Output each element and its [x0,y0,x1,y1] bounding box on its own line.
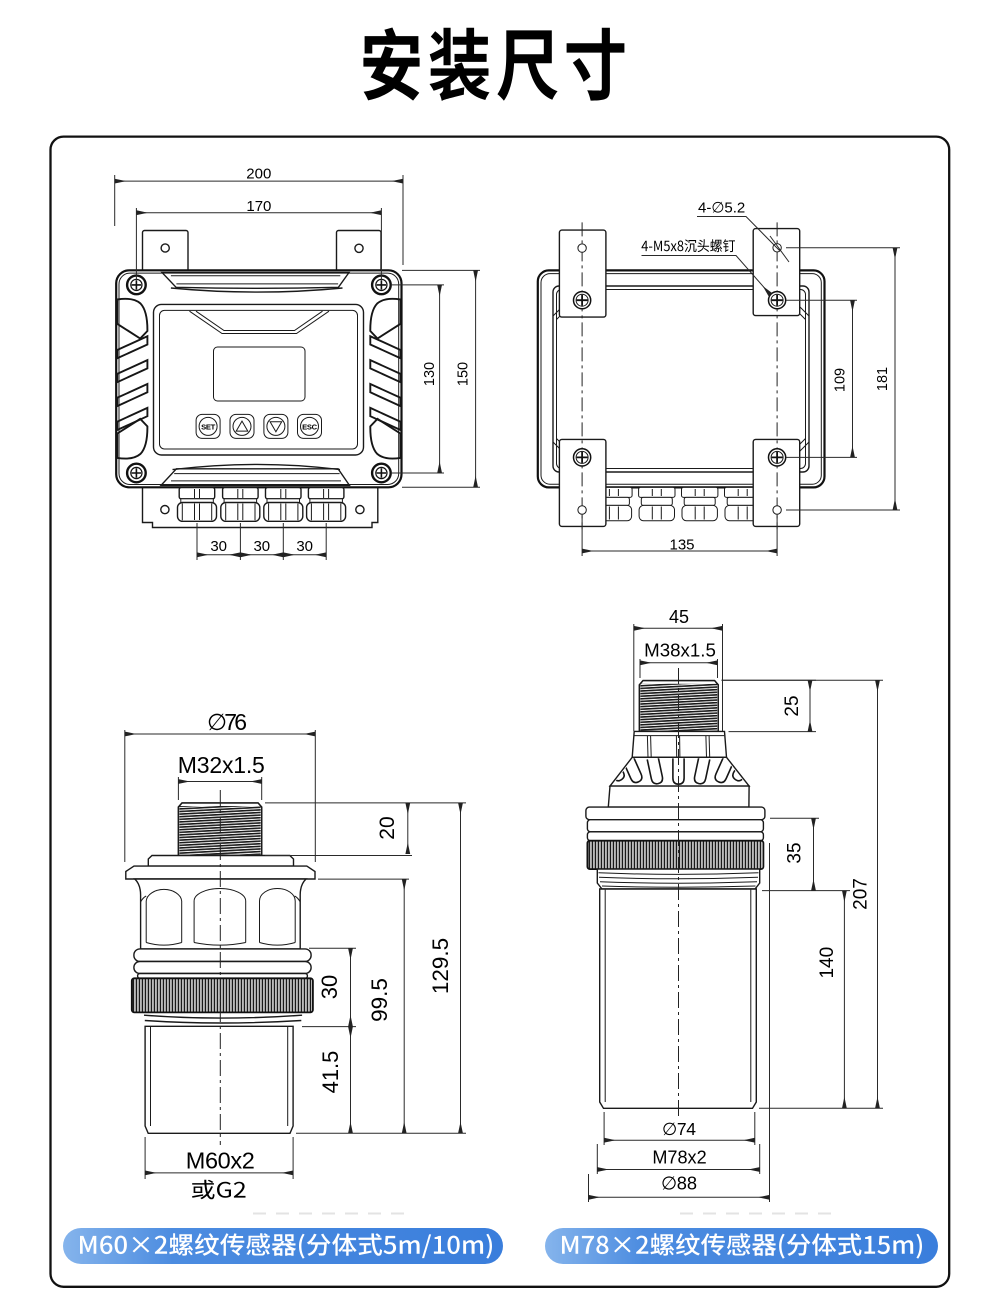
svg-text:207: 207 [850,878,871,910]
svg-text:109: 109 [833,368,849,392]
svg-text:M38x1.5: M38x1.5 [644,640,716,661]
svg-text:∅88: ∅88 [661,1173,697,1194]
svg-text:25: 25 [782,695,803,716]
svg-text:∅74: ∅74 [662,1119,696,1139]
svg-text:30: 30 [253,538,270,555]
svg-text:4-∅5.2: 4-∅5.2 [698,200,745,217]
svg-text:30: 30 [210,538,227,555]
svg-text:35: 35 [785,842,806,863]
svg-text:30: 30 [296,538,313,555]
svg-text:SET: SET [201,422,216,431]
svg-text:135: 135 [669,536,694,553]
svg-text:99.5: 99.5 [367,978,392,1022]
svg-text:130: 130 [422,362,438,386]
svg-text:181: 181 [875,367,891,391]
svg-text:M32x1.5: M32x1.5 [178,752,265,778]
svg-text:200: 200 [246,165,271,182]
svg-text:20: 20 [376,816,399,839]
svg-text:45: 45 [669,607,689,627]
svg-text:129.5: 129.5 [428,938,453,994]
svg-text:ESC: ESC [302,422,318,431]
svg-text:30: 30 [317,975,342,999]
svg-text:M78x2: M78x2 [652,1147,706,1167]
svg-text:140: 140 [817,947,838,979]
svg-text:∅76: ∅76 [207,709,247,735]
svg-text:170: 170 [246,198,271,215]
svg-text:41.5: 41.5 [318,1051,343,1094]
svg-text:150: 150 [456,362,472,386]
svg-text:M60x2: M60x2 [186,1148,255,1174]
